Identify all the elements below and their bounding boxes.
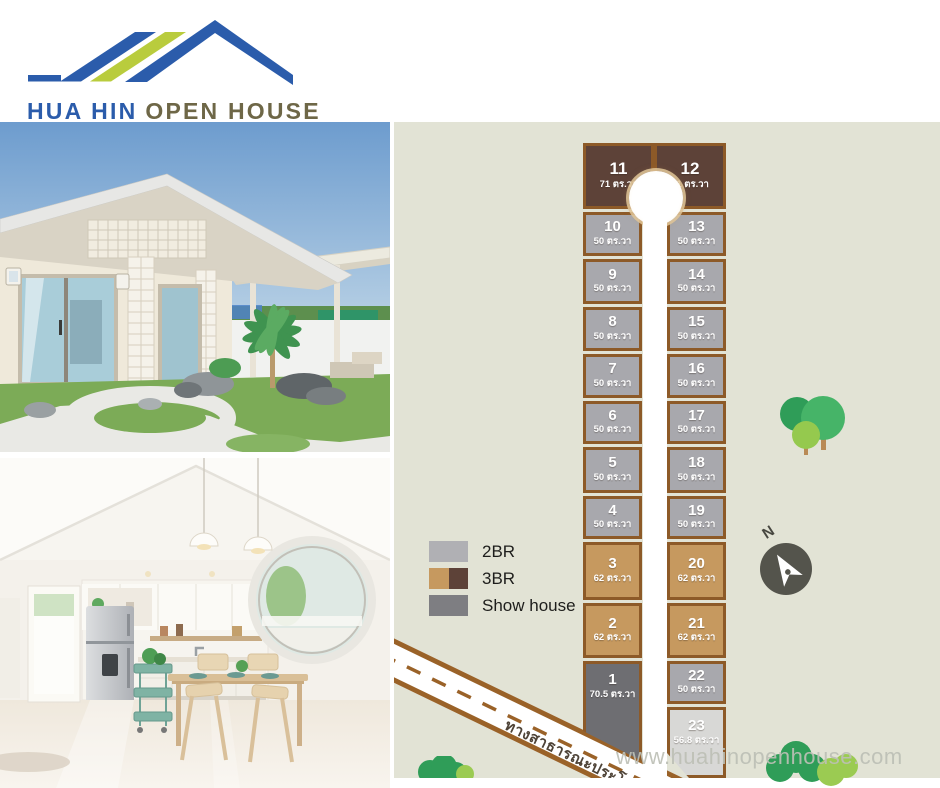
plot-area: 62 ตร.วา xyxy=(594,573,632,586)
exterior-photo-graphic xyxy=(0,122,390,452)
interior-photo-graphic xyxy=(0,458,390,788)
plot-area: 50 ตร.วา xyxy=(594,378,632,391)
legend-label: Show house xyxy=(482,596,576,616)
plot-number: 20 xyxy=(688,556,705,573)
plot-area: 50 ตร.วา xyxy=(678,236,716,249)
roof-logo-icon xyxy=(25,18,305,90)
trees-icon xyxy=(775,388,847,464)
plot-area: 50 ตร.วา xyxy=(594,424,632,437)
plot-number: 7 xyxy=(608,361,616,378)
plot-area: 50 ตร.วา xyxy=(594,283,632,296)
plot-number: 18 xyxy=(688,455,705,472)
plot-area: 62 ตร.วา xyxy=(594,632,632,645)
plot-8: 850 ตร.วา xyxy=(583,307,642,351)
plot-17: 1750 ตร.วา xyxy=(667,401,726,444)
legend-label: 2BR xyxy=(482,542,515,562)
brand-name-huahin: HUA HIN xyxy=(27,98,137,124)
plot-number: 13 xyxy=(688,219,705,236)
plot-22: 2250 ตร.วา xyxy=(667,661,726,704)
plot-number: 2 xyxy=(608,616,616,633)
exterior-photo xyxy=(0,122,390,452)
plot-19: 1950 ตร.วา xyxy=(667,496,726,539)
plot-number: 11 xyxy=(610,160,628,179)
plot-16: 1650 ตร.วา xyxy=(667,354,726,398)
legend-swatch-3br-dark xyxy=(449,568,468,589)
plot-number: 10 xyxy=(604,219,621,236)
plot-number: 12 xyxy=(681,160,700,179)
legend-item-2br: 2BR xyxy=(429,541,576,562)
interior-photo xyxy=(0,458,390,788)
plot-14: 1450 ตร.วา xyxy=(667,259,726,304)
plot-number: 23 xyxy=(688,718,705,735)
plot-area: 62 ตร.วา xyxy=(678,632,716,645)
plot-6: 650 ตร.วา xyxy=(583,401,642,444)
plot-number: 3 xyxy=(608,556,616,573)
plot-area: 50 ตร.วา xyxy=(678,472,716,485)
legend-item-show-house: Show house xyxy=(429,595,576,616)
plot-number: 1 xyxy=(608,672,616,689)
plot-number: 17 xyxy=(688,408,705,425)
legend-swatch-show-house xyxy=(429,595,468,616)
plot-number: 4 xyxy=(608,503,616,520)
plot-area: 70.5 ตร.วา xyxy=(590,689,636,702)
legend-swatch-3br-tan xyxy=(429,568,449,589)
internal-road xyxy=(643,202,667,778)
plot-number: 15 xyxy=(688,314,705,331)
plot-number: 16 xyxy=(688,361,705,378)
plot-7: 750 ตร.วา xyxy=(583,354,642,398)
brand-logo: HUA HINOPEN HOUSE xyxy=(25,14,325,118)
flyer-page: HUA HINOPEN HOUSE xyxy=(0,0,940,788)
plot-area: 50 ตร.วา xyxy=(678,424,716,437)
plot-4: 450 ตร.วา xyxy=(583,496,642,539)
plot-13: 1350 ตร.วา xyxy=(667,212,726,256)
plot-area: 50 ตร.วา xyxy=(678,684,716,697)
plot-18: 1850 ตร.วา xyxy=(667,447,726,493)
plot-number: 14 xyxy=(688,267,705,284)
plot-number: 21 xyxy=(688,616,705,633)
compass-icon xyxy=(759,542,813,596)
plot-area: 50 ตร.วา xyxy=(594,472,632,485)
plot-area: 50 ตร.วา xyxy=(594,519,632,532)
plot-number: 9 xyxy=(608,267,616,284)
plot-area: 50 ตร.วา xyxy=(594,236,632,249)
legend-swatch-3br xyxy=(429,568,468,589)
plot-number: 6 xyxy=(608,408,616,425)
plot-3: 362 ตร.วา xyxy=(583,542,642,600)
plot-2: 262 ตร.วา xyxy=(583,603,642,658)
plot-area: 50 ตร.วา xyxy=(678,378,716,391)
plot-21: 2162 ตร.วา xyxy=(667,603,726,658)
plot-9: 950 ตร.วา xyxy=(583,259,642,304)
site-plan-map: ทางสาธารณะประโยชน์ 170.5 ตร.วา262 ตร.วา3… xyxy=(394,122,940,788)
watermark-url: www.huahinopenhouse.com xyxy=(616,744,903,770)
brand-name-openhouse: OPEN HOUSE xyxy=(145,98,320,124)
plot-area: 62 ตร.วา xyxy=(678,573,716,586)
plot-number: 22 xyxy=(688,668,705,685)
legend-label: 3BR xyxy=(482,569,515,589)
legend-swatch-2br xyxy=(429,541,468,562)
plot-area: 50 ตร.วา xyxy=(594,331,632,344)
plot-area: 50 ตร.วา xyxy=(678,519,716,532)
plot-10: 1050 ตร.วา xyxy=(583,212,642,256)
map-legend: 2BR 3BR Show house xyxy=(429,541,576,622)
plot-area: 50 ตร.วา xyxy=(678,283,716,296)
plot-number: 5 xyxy=(608,455,616,472)
plot-number: 19 xyxy=(688,503,705,520)
brand-name: HUA HINOPEN HOUSE xyxy=(27,98,321,125)
plot-5: 550 ตร.วา xyxy=(583,447,642,493)
plot-number: 8 xyxy=(608,314,616,331)
plot-area: 50 ตร.วา xyxy=(678,331,716,344)
legend-item-3br: 3BR xyxy=(429,568,576,589)
plot-15: 1550 ตร.วา xyxy=(667,307,726,351)
plot-20: 2062 ตร.วา xyxy=(667,542,726,600)
